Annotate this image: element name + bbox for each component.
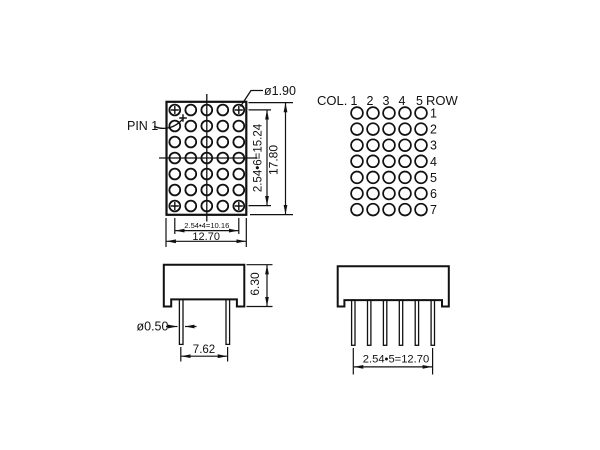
svg-text:2: 2 <box>430 123 437 137</box>
svg-text:ø0.50: ø0.50 <box>137 320 169 334</box>
svg-text:3: 3 <box>383 94 390 108</box>
svg-text:2.54•6=15.24: 2.54•6=15.24 <box>253 123 265 192</box>
svg-text:ø1.90: ø1.90 <box>264 84 296 98</box>
svg-text:2.54•5=12.70: 2.54•5=12.70 <box>363 354 429 366</box>
svg-text:2.54•4=10.16: 2.54•4=10.16 <box>184 221 229 230</box>
svg-text:1: 1 <box>351 94 358 108</box>
svg-text:4: 4 <box>430 155 437 169</box>
svg-text:6.30: 6.30 <box>248 272 262 296</box>
svg-text:3: 3 <box>430 139 437 153</box>
svg-text:7: 7 <box>430 203 437 217</box>
svg-text:5: 5 <box>430 171 437 185</box>
svg-text:7.62: 7.62 <box>193 344 215 356</box>
svg-text:6: 6 <box>430 187 437 201</box>
svg-text:17.80: 17.80 <box>267 145 281 175</box>
svg-text:12.70: 12.70 <box>192 231 220 243</box>
svg-text:4: 4 <box>399 94 406 108</box>
svg-text:5: 5 <box>416 94 423 108</box>
svg-text:COL.: COL. <box>317 93 347 108</box>
svg-text:1: 1 <box>430 107 437 121</box>
svg-text:2: 2 <box>367 94 374 108</box>
svg-text:PIN 1: PIN 1 <box>127 119 158 133</box>
